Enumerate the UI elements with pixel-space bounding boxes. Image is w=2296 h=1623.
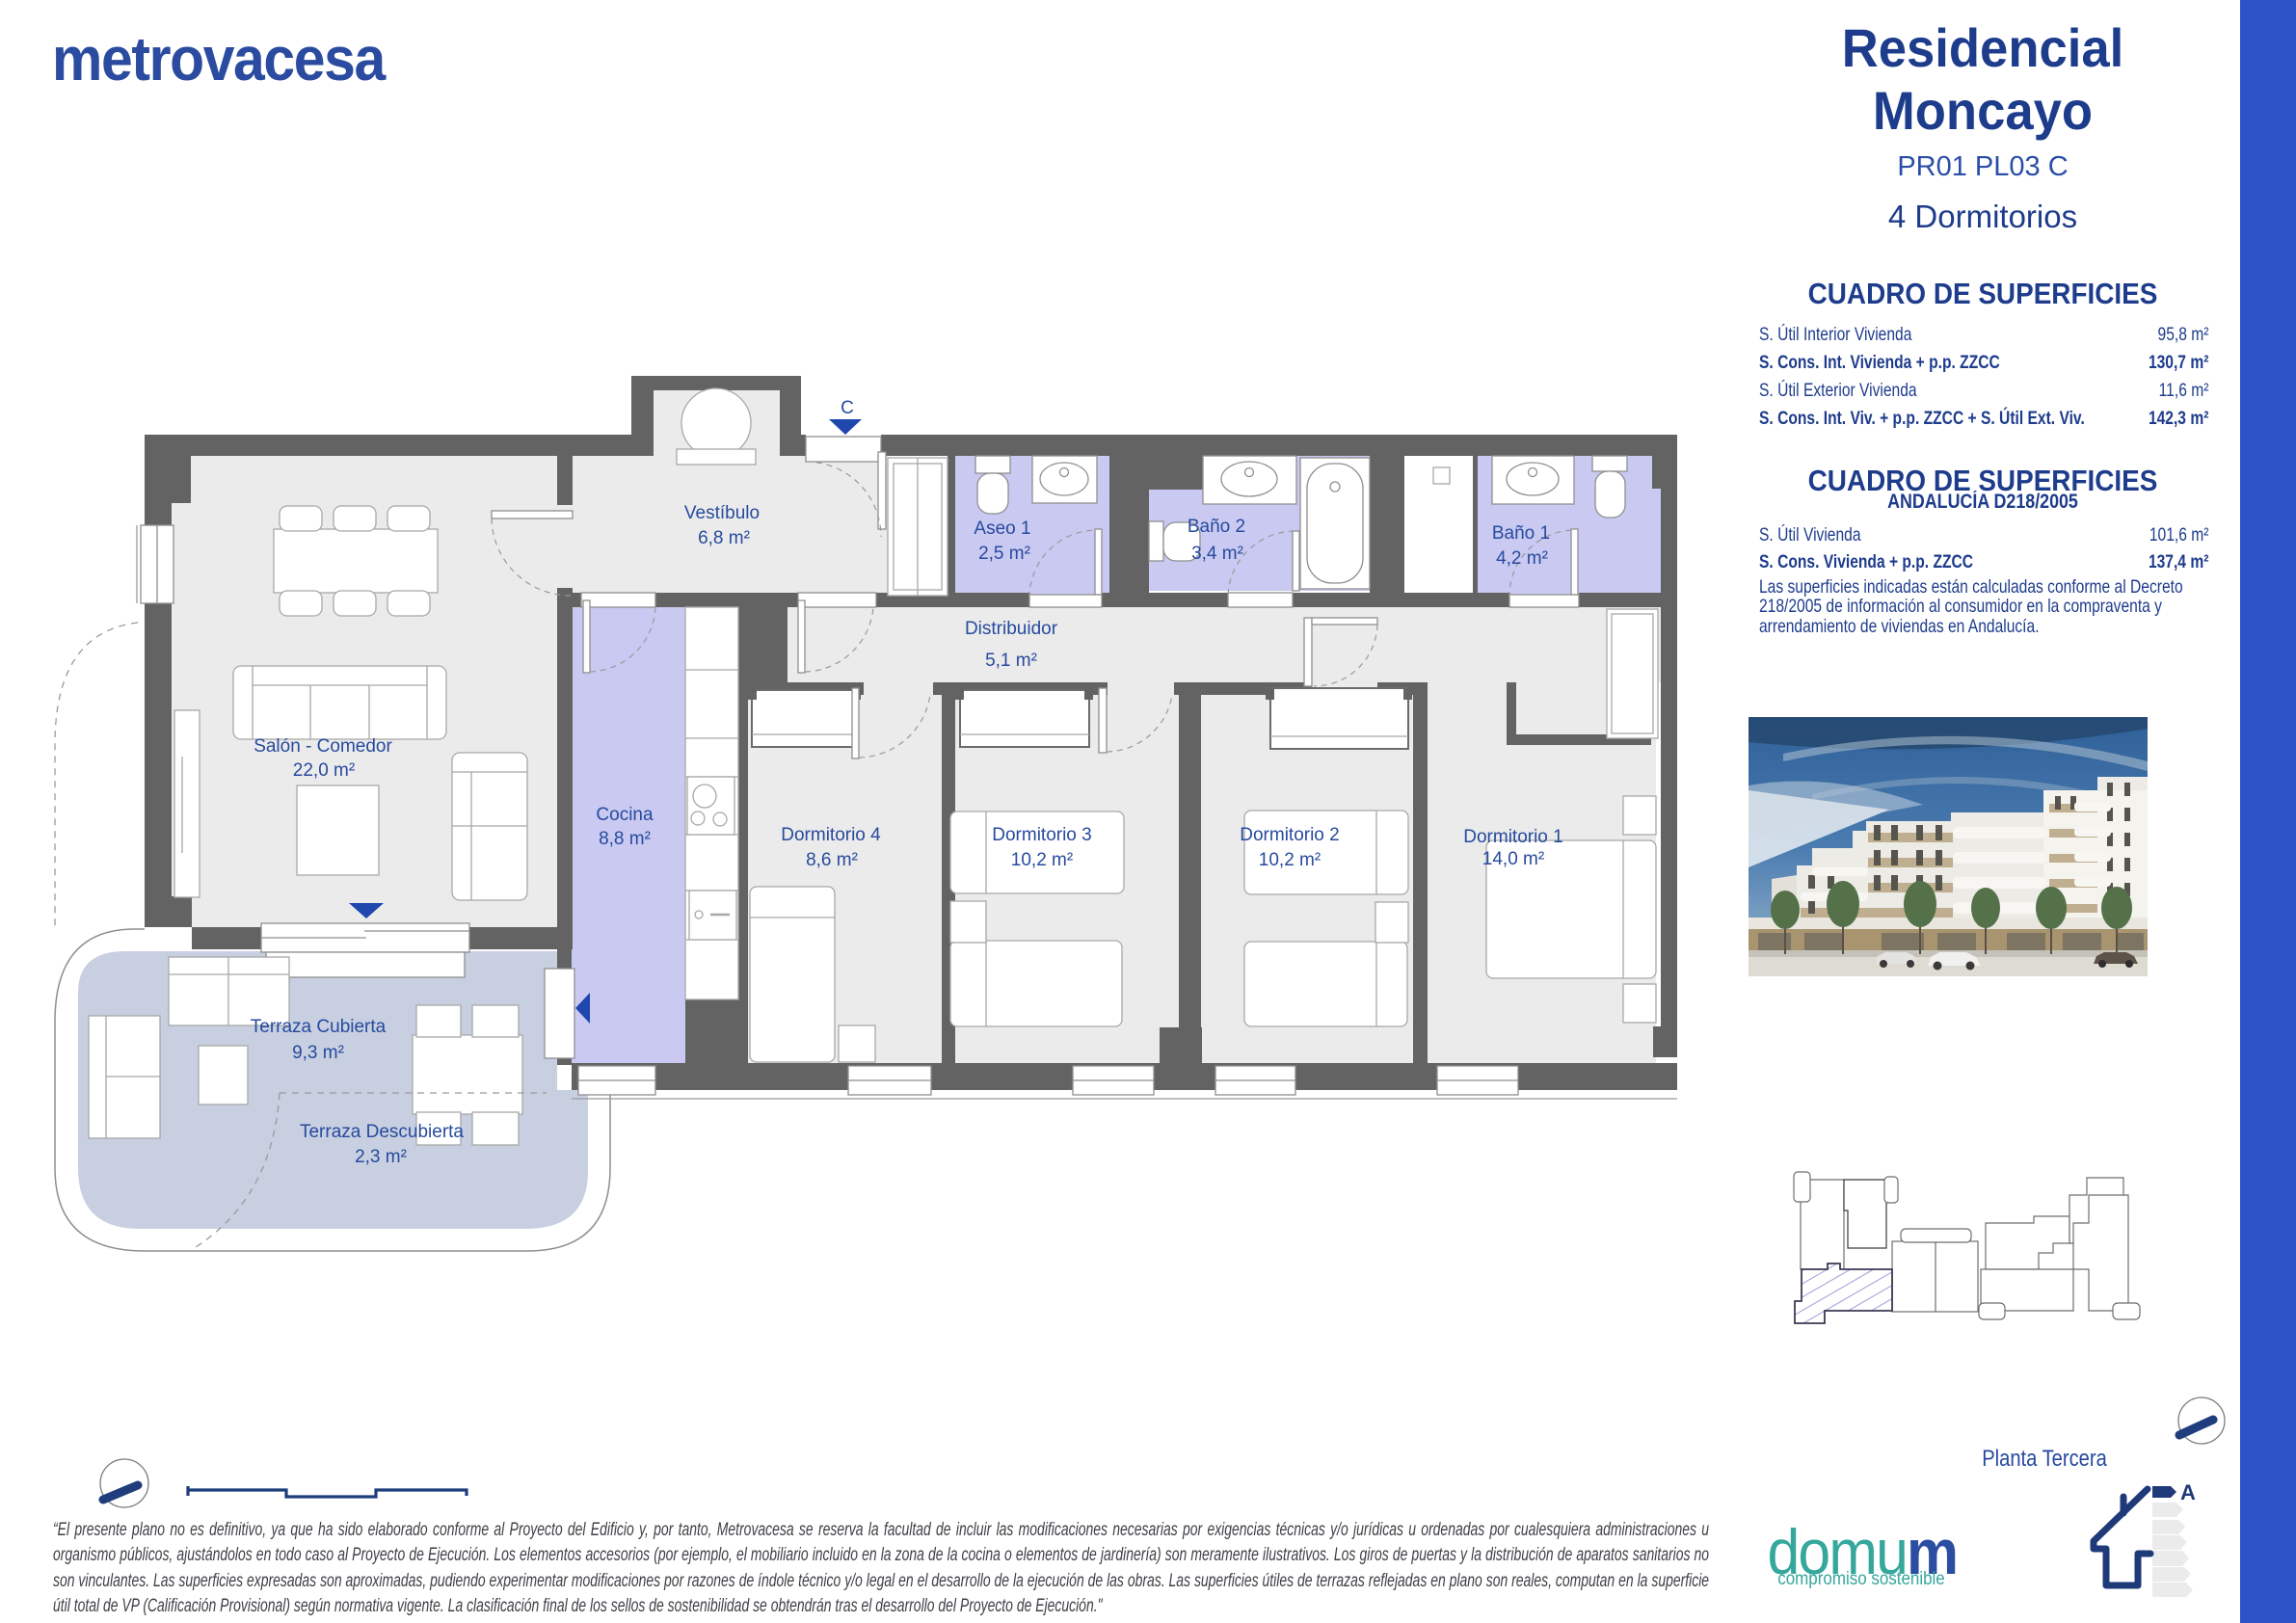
svg-text:9,3 m²: 9,3 m² [292,1043,344,1063]
svg-text:Cocina: Cocina [596,805,654,825]
svg-text:3,4 m²: 3,4 m² [1191,544,1243,564]
svg-text:5,1 m²: 5,1 m² [985,651,1037,671]
svg-text:Dormitorio 2: Dormitorio 2 [1240,825,1339,845]
svg-text:2,3 m²: 2,3 m² [355,1147,407,1167]
svg-text:Terraza Cubierta: Terraza Cubierta [251,1017,387,1037]
svg-text:Distribuidor: Distribuidor [965,619,1058,639]
svg-text:C: C [841,398,854,418]
svg-text:2,5 m²: 2,5 m² [978,544,1030,564]
svg-text:Salón - Comedor: Salón - Comedor [254,736,392,757]
svg-text:Dormitorio 1: Dormitorio 1 [1463,827,1562,847]
svg-text:6,8 m²: 6,8 m² [698,528,750,548]
svg-text:8,8 m²: 8,8 m² [599,829,651,849]
svg-text:14,0 m²: 14,0 m² [1482,849,1544,869]
svg-text:Baño 1: Baño 1 [1492,523,1550,544]
svg-text:4,2 m²: 4,2 m² [1496,548,1548,569]
svg-text:10,2 m²: 10,2 m² [1259,850,1321,870]
svg-text:Baño 2: Baño 2 [1188,517,1245,537]
svg-text:Dormitorio 3: Dormitorio 3 [992,825,1091,845]
svg-text:Vestíbulo: Vestíbulo [684,503,760,523]
svg-text:10,2 m²: 10,2 m² [1011,850,1073,870]
svg-text:22,0 m²: 22,0 m² [293,760,355,781]
svg-text:8,6 m²: 8,6 m² [806,850,858,870]
svg-text:Dormitorio 4: Dormitorio 4 [781,825,881,845]
svg-text:Terraza Descubierta: Terraza Descubierta [300,1122,464,1142]
svg-text:A: A [2180,1480,2196,1504]
svg-text:Aseo 1: Aseo 1 [974,519,1030,539]
